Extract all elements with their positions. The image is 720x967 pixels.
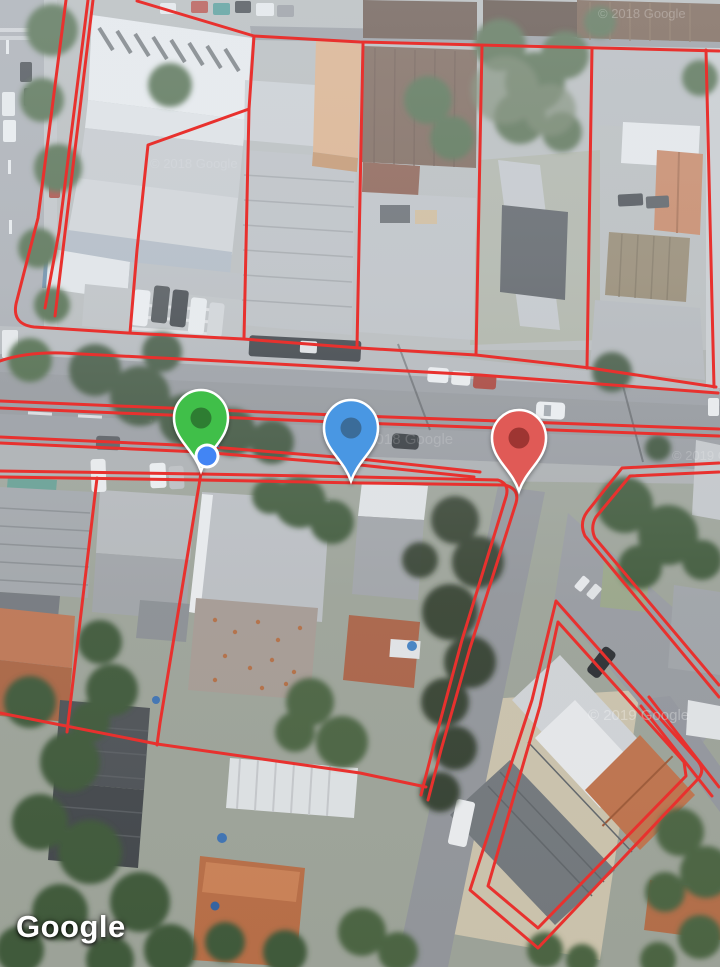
location-dot xyxy=(198,447,217,466)
satellite-map-view[interactable]: © 2018 Google © 2018 Google © 2019 Googl… xyxy=(0,0,720,967)
map-watermark: © 2019 Google xyxy=(672,448,720,463)
map-watermark: © 2018 Google xyxy=(598,6,686,21)
google-logo[interactable]: Google xyxy=(16,909,126,945)
green-pin-inner-dot xyxy=(191,408,212,429)
red-pin-inner-dot xyxy=(509,428,530,449)
map-canvas: © 2018 Google © 2018 Google © 2019 Googl… xyxy=(0,0,720,967)
blue-pin-inner-dot xyxy=(341,418,362,439)
map-watermark: © 2019 Google xyxy=(588,707,689,724)
user-location-indicator xyxy=(195,444,220,469)
map-watermark: © 2018 Google xyxy=(150,156,238,171)
